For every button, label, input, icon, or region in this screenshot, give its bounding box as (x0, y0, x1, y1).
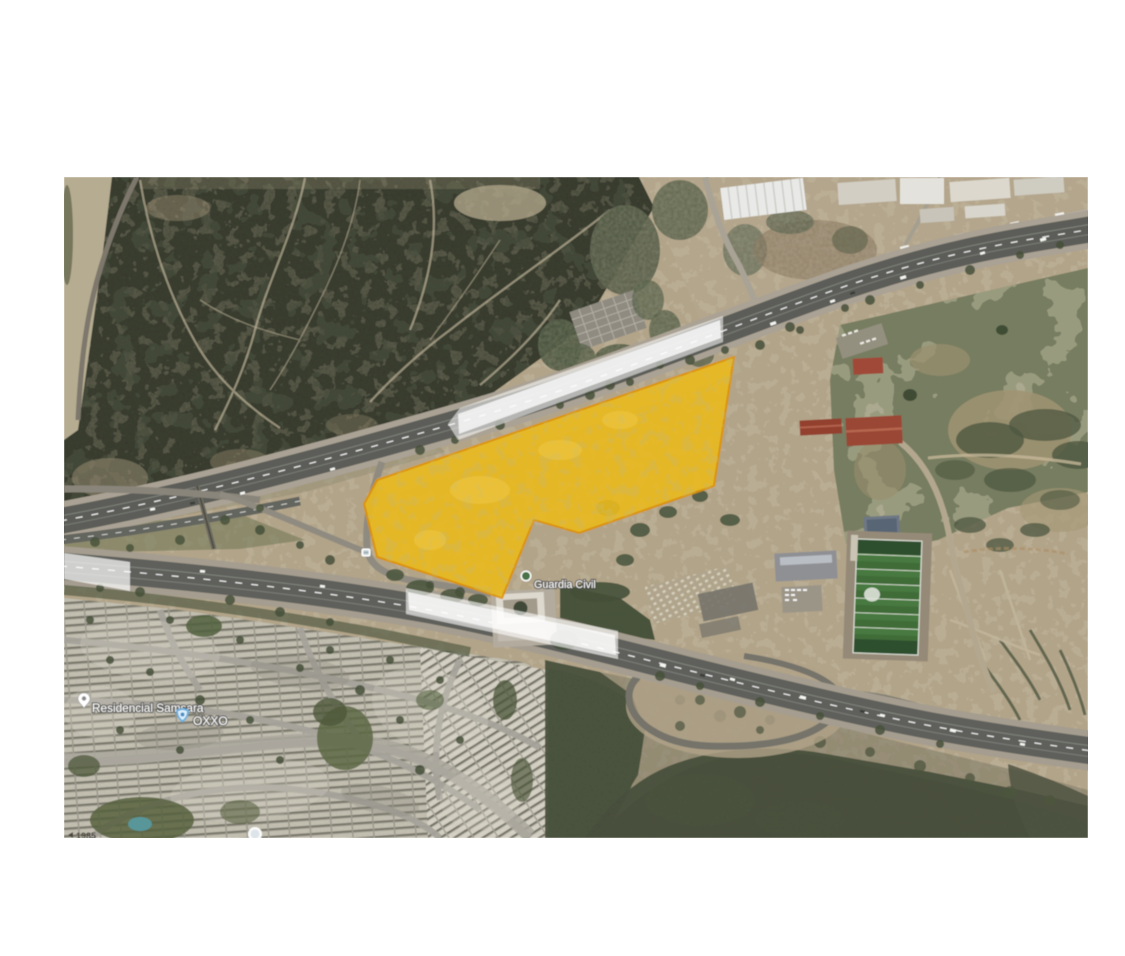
svg-text:Guardia Civil: Guardia Civil (534, 579, 596, 591)
svg-text:OXXO: OXXO (193, 714, 228, 728)
